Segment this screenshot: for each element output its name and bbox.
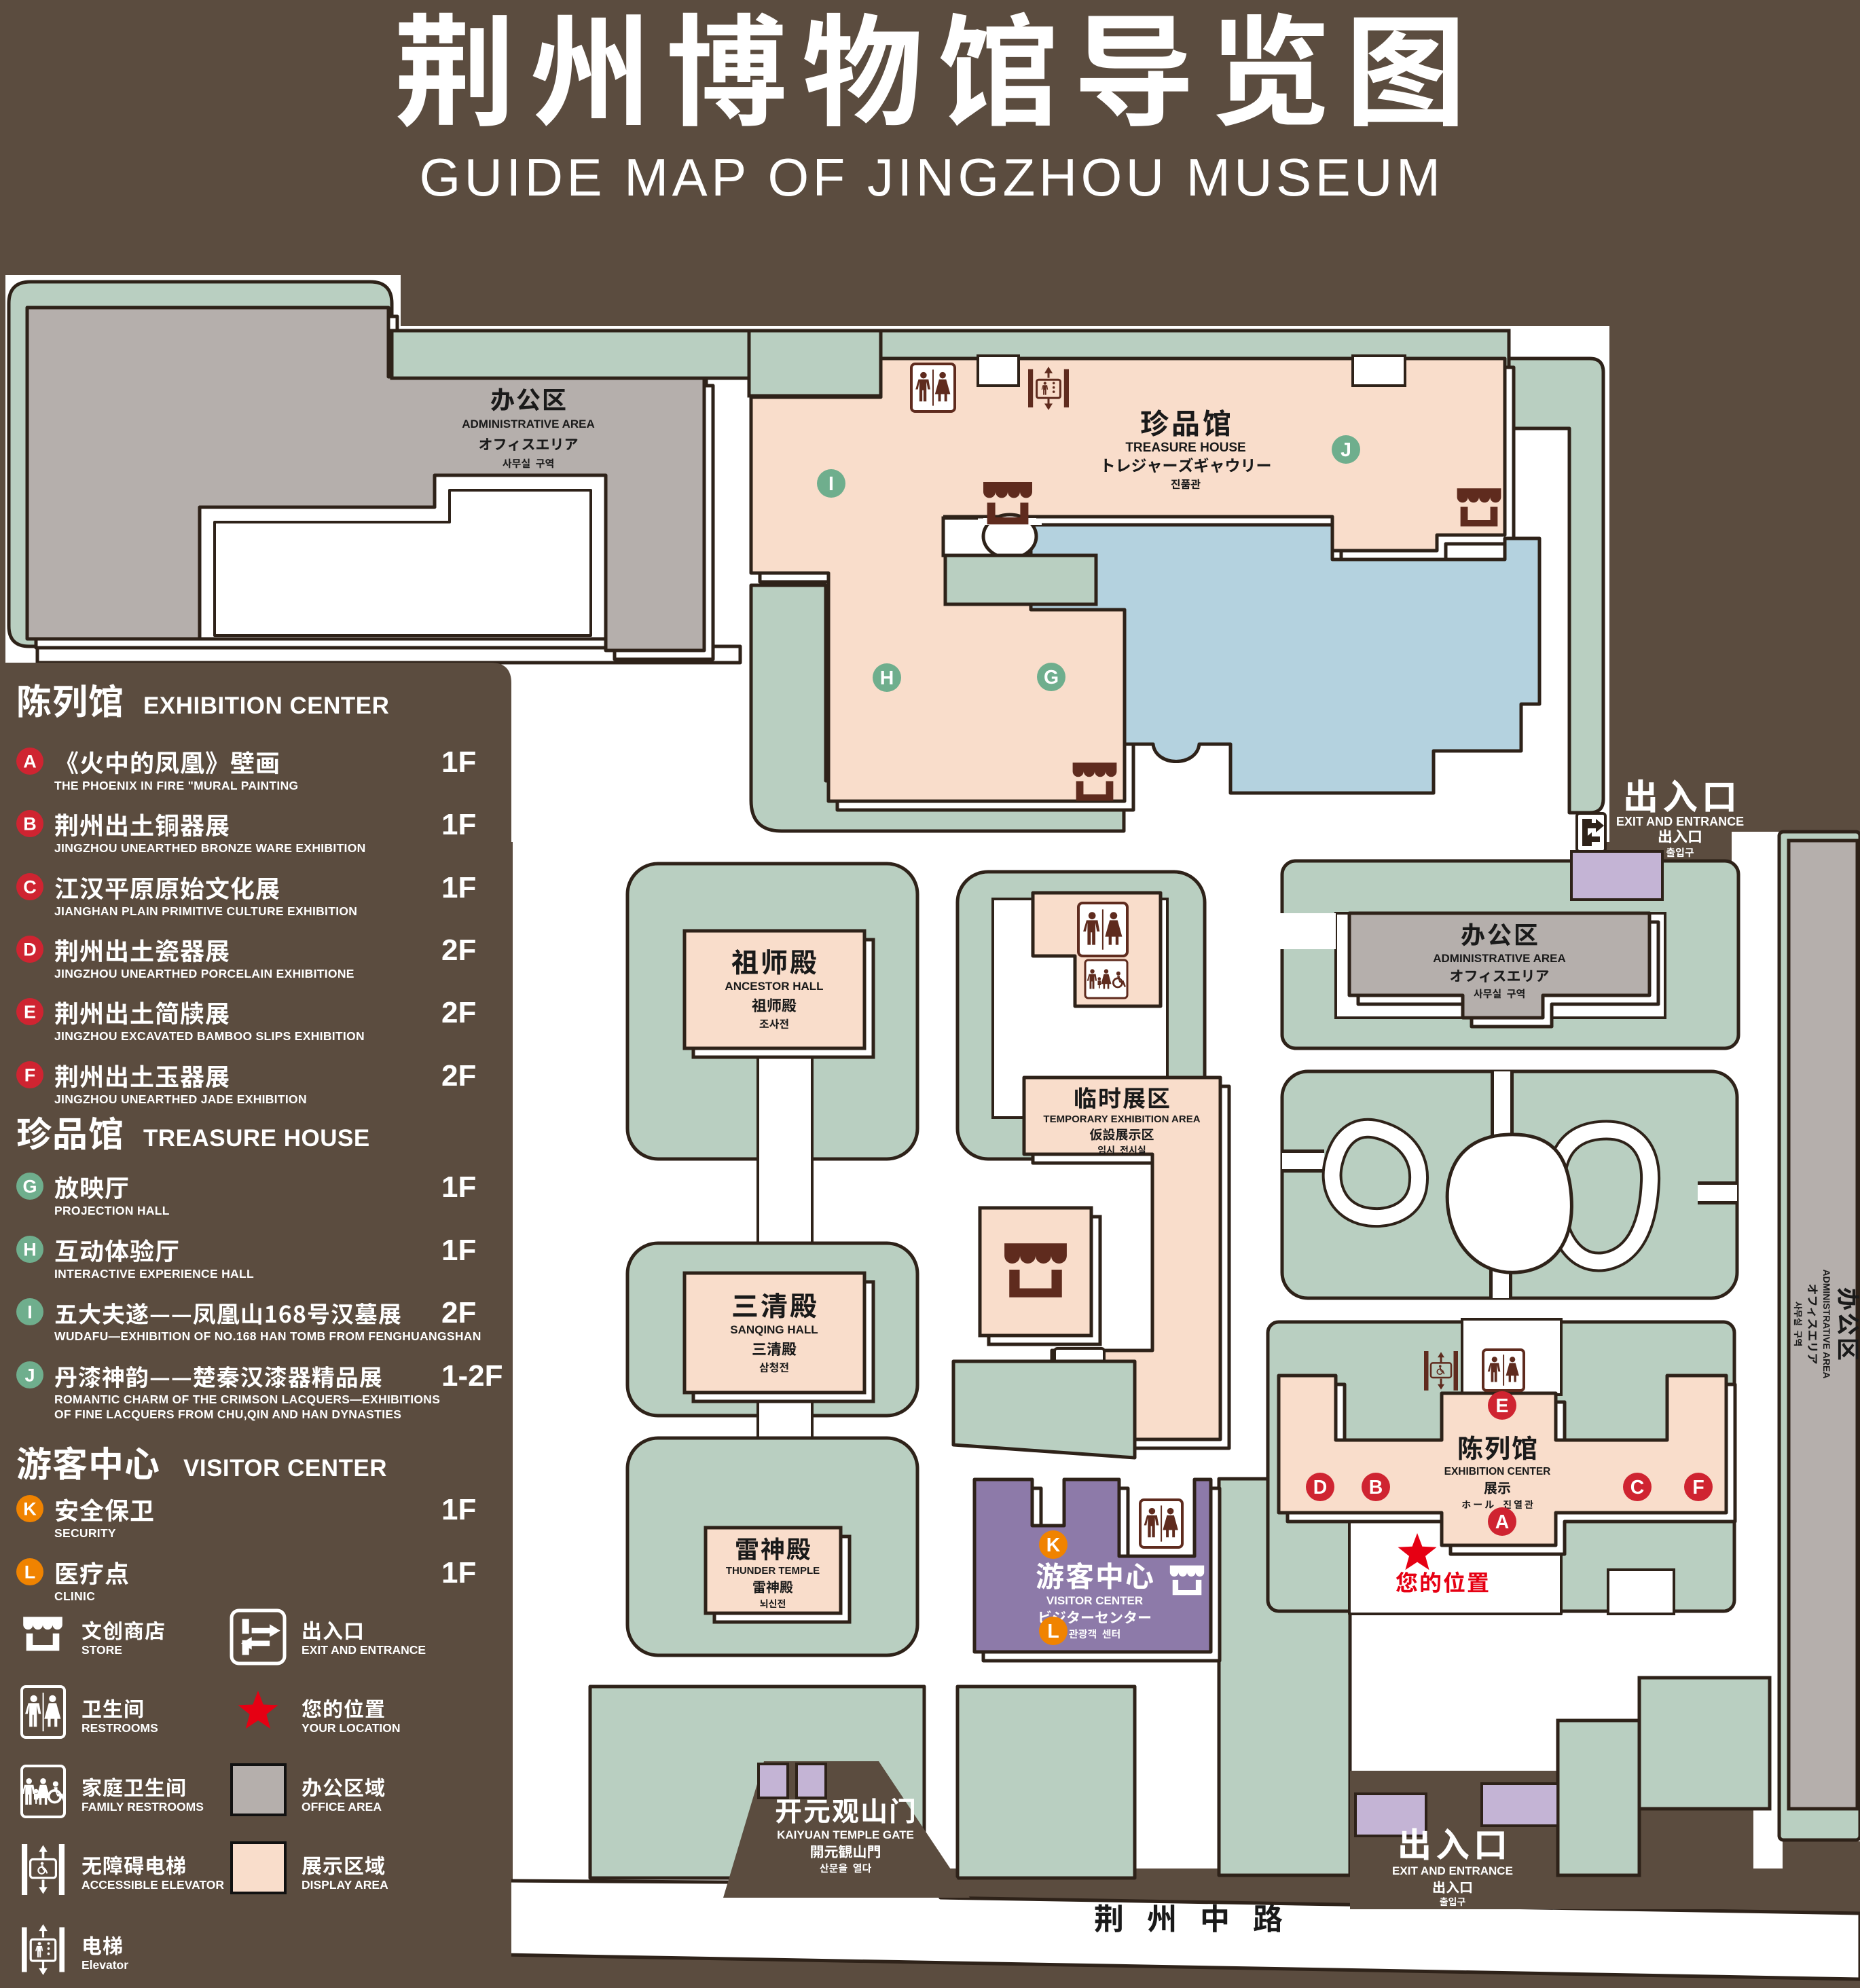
svg-text:L: L [1047, 1621, 1059, 1642]
svg-text:Elevator: Elevator [81, 1958, 128, 1972]
svg-text:ADMINISTRATIVE AREA: ADMINISTRATIVE AREA [462, 418, 595, 430]
svg-text:SECURITY: SECURITY [54, 1526, 116, 1540]
svg-text:C: C [1630, 1477, 1645, 1498]
svg-text:VISITOR CENTER: VISITOR CENTER [183, 1455, 387, 1481]
svg-text:E: E [1496, 1395, 1509, 1417]
svg-text:TEMPORARY EXHIBITION AREA: TEMPORARY EXHIBITION AREA [1043, 1113, 1200, 1125]
svg-text:ACCESSIBLE ELEVATOR: ACCESSIBLE ELEVATOR [81, 1878, 224, 1892]
svg-text:G: G [22, 1177, 37, 1197]
svg-text:1F: 1F [441, 1556, 476, 1589]
svg-text:KAIYUAN TEMPLE GATE: KAIYUAN TEMPLE GATE [777, 1828, 914, 1841]
svg-text:1F: 1F [441, 1493, 476, 1526]
svg-text:A: A [23, 752, 37, 772]
svg-text:B: B [1369, 1477, 1383, 1498]
svg-text:F: F [1692, 1477, 1704, 1498]
svg-text:I: I [828, 473, 834, 495]
svg-text:L: L [24, 1562, 36, 1583]
svg-text:EXIT AND ENTRANCE: EXIT AND ENTRANCE [302, 1643, 426, 1657]
svg-text:J: J [1341, 439, 1351, 461]
svg-text:SANQING HALL: SANQING HALL [730, 1323, 818, 1336]
svg-text:JIANGHAN PLAIN PRIMITIVE CULTU: JIANGHAN PLAIN PRIMITIVE CULTURE EXHIBIT… [54, 904, 357, 918]
svg-text:EXHIBITION CENTER: EXHIBITION CENTER [143, 693, 389, 719]
svg-text:1F: 1F [441, 808, 476, 841]
svg-text:JINGZHOU UNEARTHED JADE EXHIBI: JINGZHOU UNEARTHED JADE EXHIBITION [54, 1092, 307, 1106]
svg-text:E: E [24, 1002, 36, 1023]
svg-text:ANCESTOR HALL: ANCESTOR HALL [725, 980, 823, 993]
svg-text:J: J [24, 1365, 35, 1386]
svg-text:2F: 2F [441, 996, 476, 1029]
svg-text:DISPLAY AREA: DISPLAY AREA [302, 1878, 388, 1892]
svg-text:JINGZHOU EXCAVATED BAMBOO SLIP: JINGZHOU EXCAVATED BAMBOO SLIPS EXHIBITI… [54, 1029, 365, 1043]
svg-text:JINGZHOU UNEARTHED BRONZE WARE: JINGZHOU UNEARTHED BRONZE WARE EXHIBITIO… [54, 841, 366, 855]
svg-text:ADMINISTRATIVE AREA: ADMINISTRATIVE AREA [1821, 1270, 1832, 1379]
svg-text:1-2F: 1-2F [441, 1359, 503, 1393]
svg-text:A: A [1495, 1511, 1510, 1533]
svg-text:2F: 2F [441, 1059, 476, 1092]
svg-text:YOUR LOCATION: YOUR LOCATION [302, 1721, 401, 1735]
svg-text:K: K [1046, 1534, 1061, 1556]
svg-text:VISITOR CENTER: VISITOR CENTER [1046, 1594, 1143, 1607]
svg-text:H: H [880, 667, 894, 689]
svg-text:EXHIBITION CENTER: EXHIBITION CENTER [1444, 1466, 1551, 1477]
svg-text:THUNDER TEMPLE: THUNDER TEMPLE [726, 1565, 820, 1577]
svg-text:STORE: STORE [81, 1643, 122, 1657]
svg-text:TREASURE HOUSE: TREASURE HOUSE [1125, 441, 1245, 455]
svg-text:ROMANTIC CHARM OF THE CRIMSON: ROMANTIC CHARM OF THE CRIMSON LACQUERS—E… [54, 1393, 440, 1406]
svg-text:GUIDE MAP OF JINGZHOU MUSEUM: GUIDE MAP OF JINGZHOU MUSEUM [420, 147, 1444, 207]
svg-text:2F: 2F [441, 934, 476, 967]
svg-text:1F: 1F [441, 1171, 476, 1204]
svg-text:G: G [1044, 667, 1059, 688]
svg-text:RESTROOMS: RESTROOMS [81, 1721, 158, 1735]
svg-text:CLINIC: CLINIC [54, 1589, 95, 1603]
svg-text:B: B [23, 814, 37, 834]
svg-text:ADMINISTRATIVE AREA: ADMINISTRATIVE AREA [1433, 952, 1566, 965]
svg-text:1F: 1F [441, 871, 476, 904]
svg-text:INTERACTIVE EXPERIENCE HALL: INTERACTIVE EXPERIENCE HALL [54, 1267, 254, 1281]
svg-text:1F: 1F [441, 745, 476, 779]
svg-text:C: C [23, 877, 37, 898]
svg-text:TREASURE HOUSE: TREASURE HOUSE [143, 1125, 370, 1152]
svg-text:OFFICE AREA: OFFICE AREA [302, 1800, 382, 1814]
svg-text:OF FINE LACQUERS FROM CHU,QIN: OF FINE LACQUERS FROM CHU,QIN AND HAN DY… [54, 1407, 401, 1421]
svg-text:PROJECTION HALL: PROJECTION HALL [54, 1204, 170, 1217]
svg-text:2F: 2F [441, 1296, 476, 1329]
svg-text:K: K [23, 1499, 37, 1520]
svg-text:I: I [27, 1302, 33, 1323]
svg-text:EXIT AND ENTRANCE: EXIT AND ENTRANCE [1616, 815, 1744, 828]
svg-text:FAMILY RESTROOMS: FAMILY RESTROOMS [81, 1800, 204, 1814]
svg-text:D: D [23, 940, 37, 960]
svg-text:D: D [1313, 1477, 1328, 1498]
svg-text:WUDAFU—EXHIBITION OF NO.168 HA: WUDAFU—EXHIBITION OF NO.168 HAN TOMB FRO… [54, 1329, 481, 1343]
svg-text:1F: 1F [441, 1234, 476, 1267]
svg-text:THE PHOENIX IN FIRE "MURAL PAI: THE PHOENIX IN FIRE "MURAL PAINTING [54, 779, 298, 792]
svg-text:JINGZHOU UNEARTHED PORCELAIN E: JINGZHOU UNEARTHED PORCELAIN EXHIBITIONE [54, 967, 354, 980]
svg-text:EXIT AND ENTRANCE: EXIT AND ENTRANCE [1392, 1864, 1513, 1877]
svg-text:H: H [23, 1240, 37, 1260]
svg-text:F: F [24, 1065, 36, 1086]
